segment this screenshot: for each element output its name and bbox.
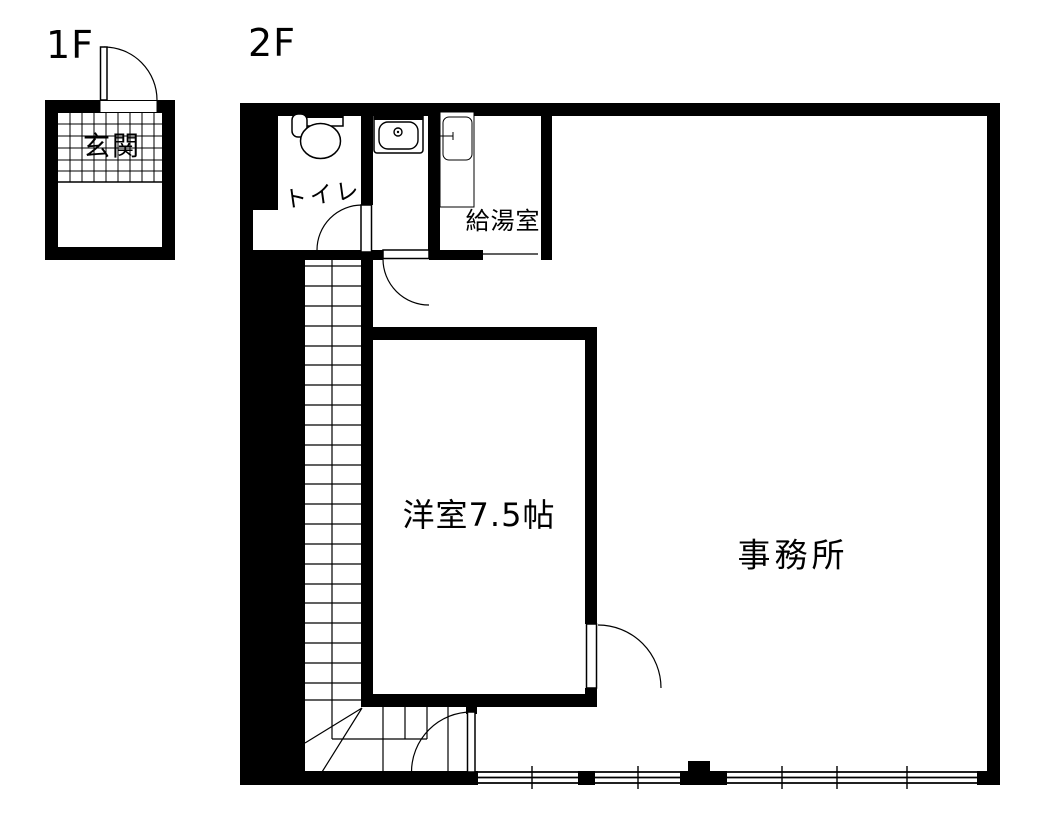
door-swing-arc xyxy=(317,205,362,250)
toilet-door xyxy=(317,205,372,252)
door-leaf xyxy=(587,624,597,688)
floor-plan-drawing xyxy=(0,0,1040,822)
stairhall-door xyxy=(412,712,476,772)
door-leaf xyxy=(101,47,108,100)
floor-2f-plan xyxy=(240,103,1000,789)
stair-winder-lines xyxy=(305,708,427,772)
window-2 xyxy=(595,766,680,789)
door-leaf xyxy=(361,205,372,252)
western-room-door xyxy=(587,624,662,688)
washbasin-icon xyxy=(374,113,423,153)
kitchen-sink-counter-icon xyxy=(440,112,474,207)
window-3 xyxy=(727,766,977,789)
door-swing-arc xyxy=(598,625,661,688)
door-swing-arc xyxy=(104,47,157,100)
door-leaf xyxy=(468,712,476,772)
room-label-western-room: 洋室7.5帖 xyxy=(403,499,556,531)
washroom-door xyxy=(383,250,429,305)
door-leaf xyxy=(383,250,429,259)
f1-entrance-door xyxy=(101,47,158,100)
stair-treads-vertical-run xyxy=(305,266,361,700)
floor-label-1f: 1F xyxy=(46,26,94,64)
room-label-kitchenette: 給湯室 xyxy=(466,209,541,233)
floor-label-2f: 2F xyxy=(248,24,296,62)
windows xyxy=(478,766,977,789)
window-1 xyxy=(478,766,578,789)
door-swing-arc xyxy=(383,259,429,305)
floor-plan-canvas: 1F 2F 玄関 トイレ 給湯室 洋室7.5帖 事務所 xyxy=(0,0,1040,822)
room-label-genkan: 玄関 xyxy=(83,134,141,161)
toilet-icon xyxy=(292,113,343,159)
f1-door-opening xyxy=(100,101,157,113)
room-label-office: 事務所 xyxy=(738,539,849,572)
door-swing-arc xyxy=(412,712,472,772)
